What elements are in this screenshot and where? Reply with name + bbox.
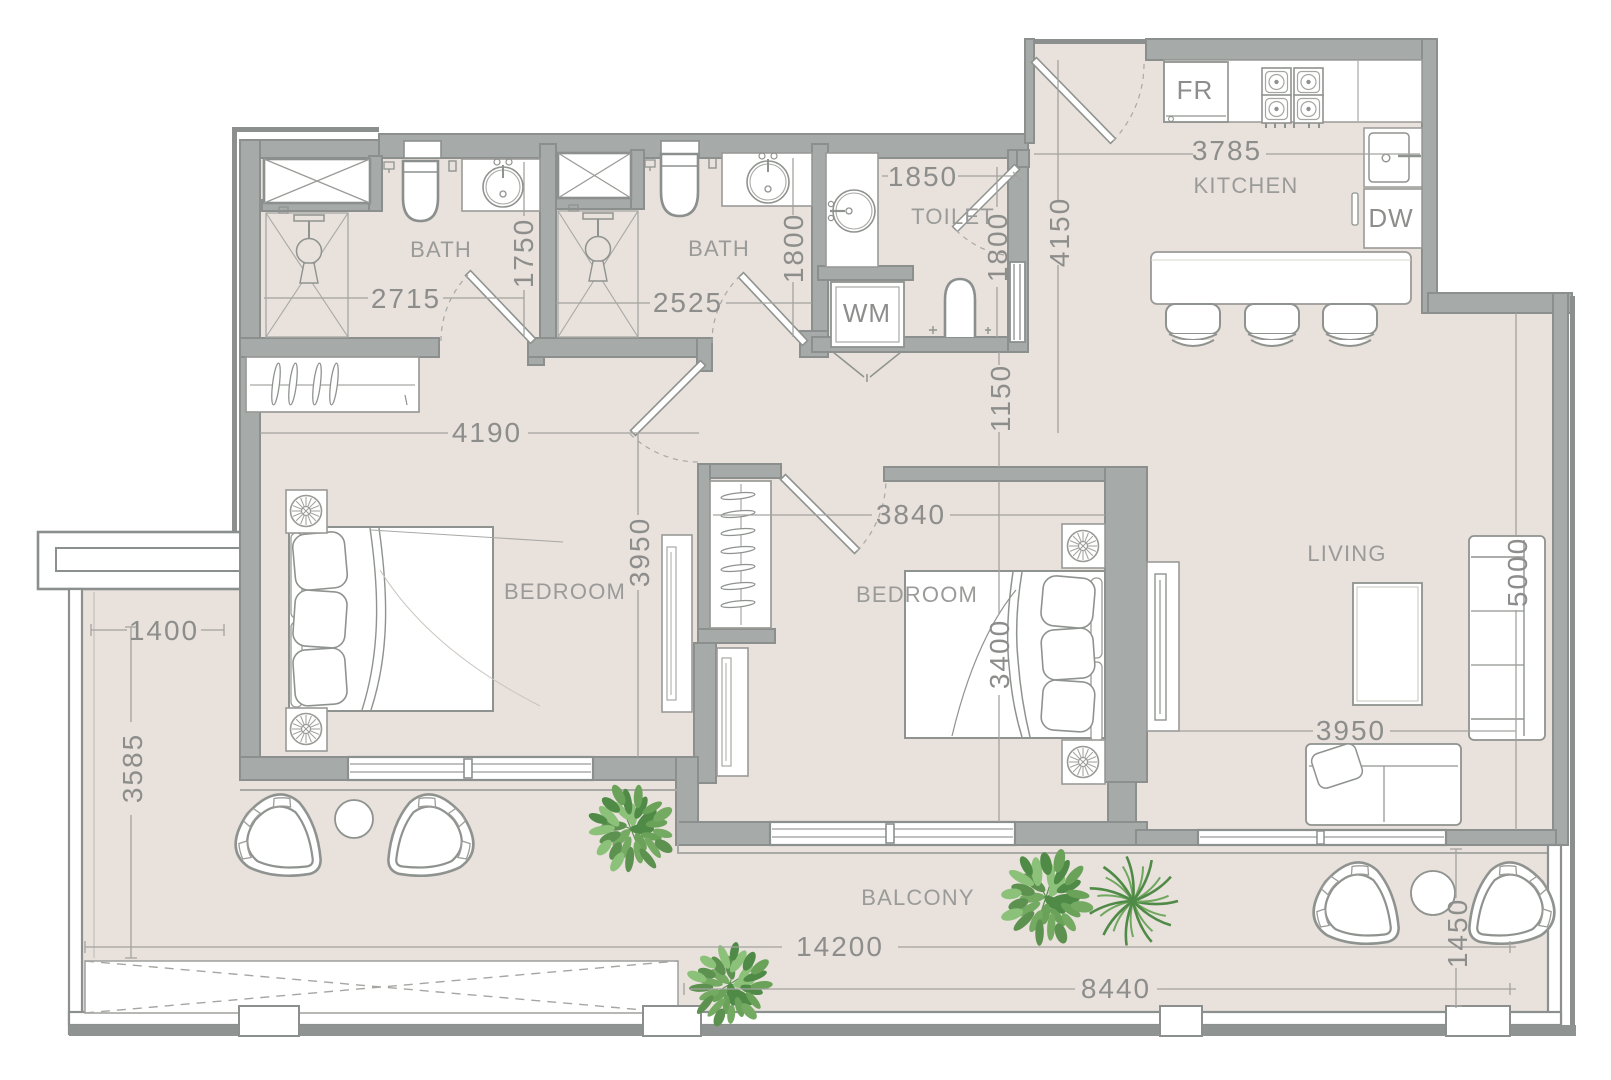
svg-text:2525: 2525: [653, 287, 723, 318]
svg-text:WM: WM: [843, 298, 891, 328]
svg-text:BATH: BATH: [688, 236, 750, 261]
svg-text:BALCONY: BALCONY: [861, 885, 975, 910]
svg-text:TOILET: TOILET: [911, 204, 995, 229]
svg-text:3950: 3950: [1316, 715, 1386, 746]
svg-text:1450: 1450: [1442, 898, 1473, 968]
svg-text:8440: 8440: [1081, 973, 1151, 1004]
svg-text:1400: 1400: [129, 615, 199, 646]
svg-text:BATH: BATH: [410, 237, 472, 262]
svg-text:FR: FR: [1177, 75, 1214, 105]
svg-text:3585: 3585: [117, 733, 148, 803]
svg-text:1750: 1750: [508, 218, 539, 288]
svg-text:KITCHEN: KITCHEN: [1194, 173, 1299, 198]
svg-text:BEDROOM: BEDROOM: [856, 582, 978, 607]
svg-text:4190: 4190: [452, 417, 522, 448]
svg-text:4150: 4150: [1044, 197, 1075, 267]
svg-text:1150: 1150: [985, 364, 1016, 432]
svg-text:1800: 1800: [778, 213, 809, 283]
svg-text:3785: 3785: [1192, 135, 1262, 166]
svg-text:3400: 3400: [984, 619, 1015, 689]
svg-text:DW: DW: [1368, 203, 1413, 233]
svg-text:2715: 2715: [371, 283, 441, 314]
svg-text:1850: 1850: [888, 161, 958, 192]
svg-text:5000: 5000: [1502, 537, 1533, 607]
svg-text:3840: 3840: [876, 499, 946, 530]
svg-text:BEDROOM: BEDROOM: [504, 579, 626, 604]
svg-text:3950: 3950: [624, 517, 655, 587]
svg-text:LIVING: LIVING: [1307, 541, 1386, 566]
svg-text:14200: 14200: [796, 931, 884, 962]
